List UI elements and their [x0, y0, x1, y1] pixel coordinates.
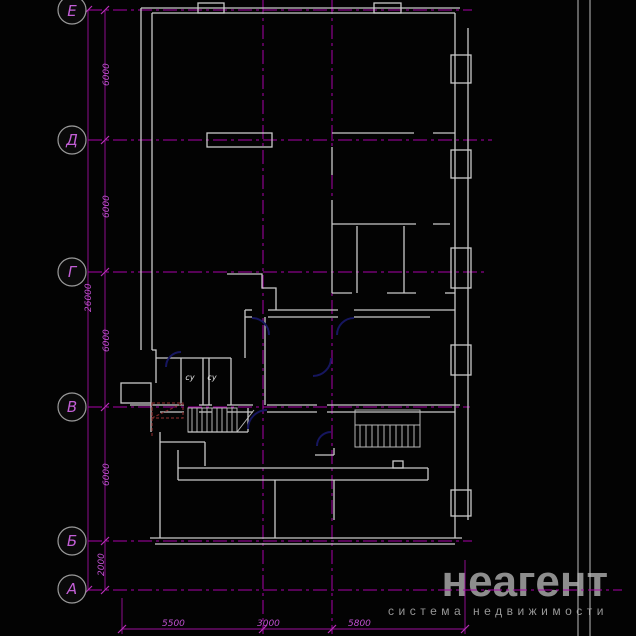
dim-bottom-1: 3000 — [257, 619, 280, 629]
dim-total: 26000 — [84, 283, 94, 312]
axis-label-v: В — [67, 398, 77, 416]
room-label-su-2: су — [207, 373, 216, 382]
outer-walls — [121, 3, 471, 544]
dim-left-0: 6000 — [102, 63, 112, 86]
axis-bubbles: Е Д Г В Б А — [58, 0, 86, 603]
interior-walls — [130, 133, 460, 538]
axis-label-a: А — [66, 580, 77, 598]
room-labels: су су — [185, 373, 216, 382]
axis-label-e: Е — [67, 2, 77, 20]
door-arcs — [166, 318, 354, 446]
axis-label-d: Д — [65, 131, 78, 149]
dim-left-3: 6000 — [102, 463, 112, 486]
dim-bottom-2: 5800 — [348, 619, 371, 629]
floor-plan-drawing: 6000 6000 6000 6000 2000 26000 5500 3000… — [0, 0, 636, 636]
dim-bottom-0: 5500 — [162, 619, 185, 629]
vent-grille — [355, 410, 420, 447]
dim-left-2: 6000 — [102, 329, 112, 352]
dim-left-4: 2000 — [97, 553, 107, 576]
cad-viewport: неагент система недвижимости — [0, 0, 636, 636]
dimension-ticks — [84, 6, 469, 633]
sheet-border-lines — [578, 0, 590, 636]
dim-left-1: 6000 — [102, 195, 112, 218]
dimension-chains: 6000 6000 6000 6000 2000 26000 5500 3000… — [84, 6, 469, 634]
axis-label-b: Б — [67, 532, 77, 550]
demolition-marks — [152, 403, 183, 438]
room-label-su-1: су — [185, 373, 194, 382]
